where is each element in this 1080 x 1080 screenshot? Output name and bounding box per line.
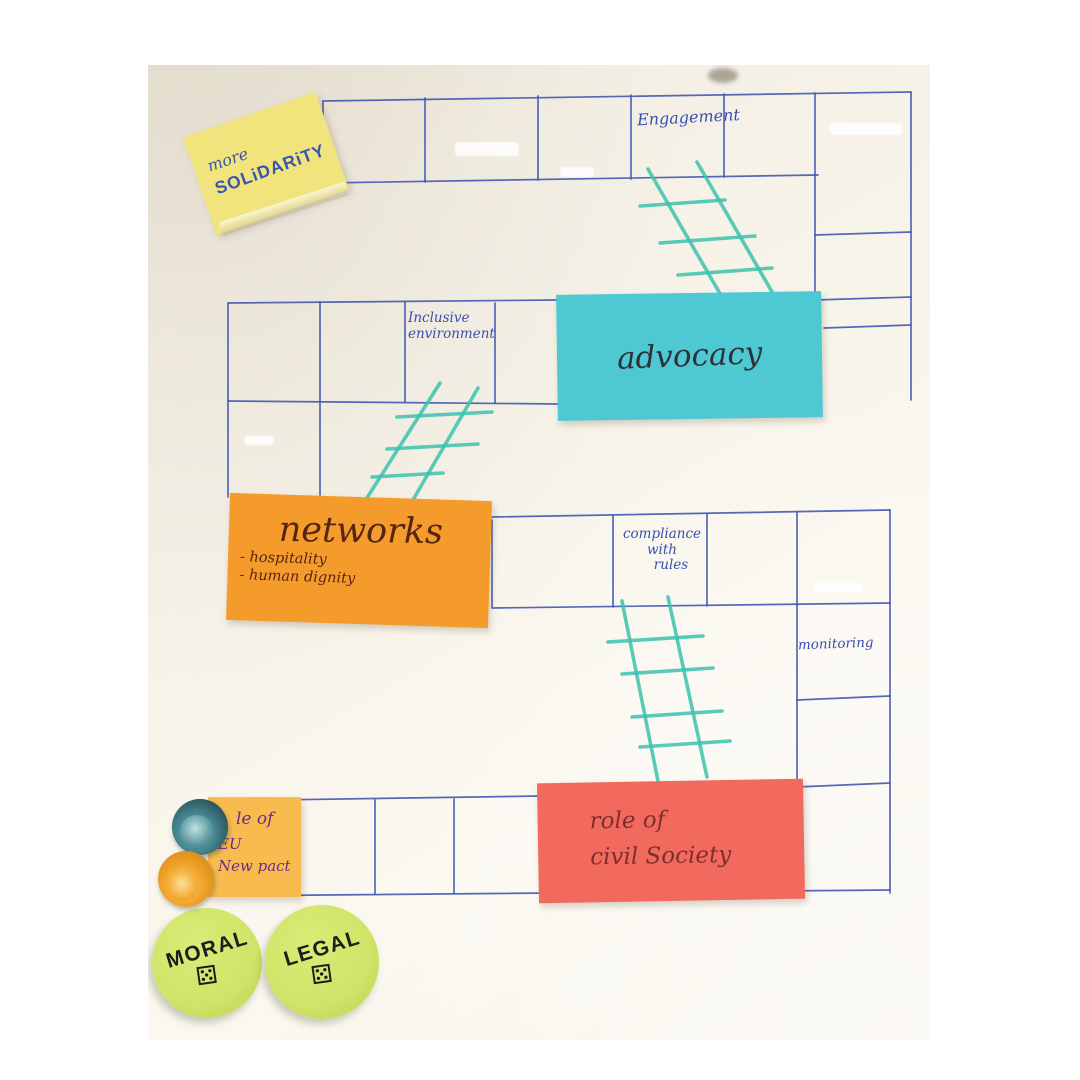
board-grid bbox=[210, 92, 911, 896]
cell-label-monitoring: monitoring bbox=[798, 636, 874, 654]
cell-label-inclusive-line1: Inclusive bbox=[408, 311, 498, 327]
eu-note-line3: New pact bbox=[218, 855, 295, 878]
sticky-note-networks: networks - hospitality - human dignity bbox=[226, 493, 492, 628]
cell-label-compliance-line3: rules bbox=[616, 558, 708, 574]
round-token-moral: MORAL ⚄ bbox=[152, 908, 262, 1018]
eu-note-line1: le of bbox=[236, 807, 295, 833]
cell-label-inclusive-line2: environment bbox=[408, 327, 498, 343]
die-icon: ⚄ bbox=[309, 961, 334, 989]
advocacy-label: advocacy bbox=[616, 335, 763, 377]
die-icon: ⚄ bbox=[194, 962, 219, 990]
round-token-legal: LEGAL ⚄ bbox=[265, 905, 379, 1019]
whiteout-patch bbox=[455, 142, 519, 156]
page-background: Engagement Inclusive environment complia… bbox=[0, 0, 1080, 1080]
cell-label-compliance-line2: with bbox=[616, 543, 708, 559]
flipchart-photo: Engagement Inclusive environment complia… bbox=[148, 65, 930, 1040]
networks-title: networks bbox=[241, 509, 482, 552]
ladder-compliance-civilsociety bbox=[608, 597, 730, 781]
whiteout-patch bbox=[560, 167, 594, 177]
orange-magnet bbox=[158, 851, 214, 907]
cell-label-compliance-line1: compliance bbox=[616, 527, 708, 543]
whiteout-patch bbox=[244, 436, 274, 445]
teal-magnet bbox=[172, 799, 228, 855]
sticky-note-advocacy: advocacy bbox=[556, 291, 823, 421]
ladder-engagement-advocacy bbox=[640, 162, 775, 304]
sticky-note-civil-society: role of civil Society bbox=[537, 779, 805, 904]
photo-smudge bbox=[708, 68, 738, 83]
whiteout-patch bbox=[813, 583, 863, 593]
whiteout-patch bbox=[830, 123, 902, 135]
civil-society-line1: role of bbox=[589, 801, 804, 840]
civil-society-line2: civil Society bbox=[590, 836, 805, 875]
eu-note-line2: EU bbox=[218, 833, 295, 856]
ladder-inclusive-networks bbox=[365, 383, 492, 505]
